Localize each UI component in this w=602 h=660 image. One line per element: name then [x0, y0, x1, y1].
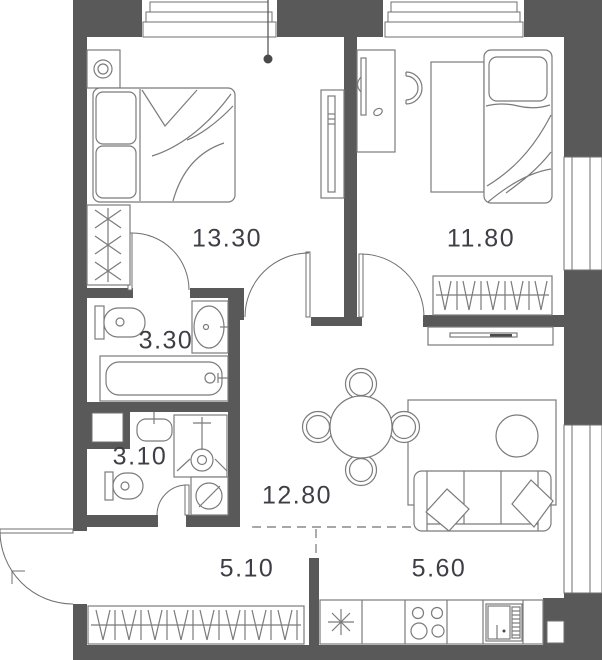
room-label-living-room: 12.80	[262, 482, 332, 511]
window-icon-right-living	[564, 425, 602, 593]
zone-boundary	[252, 527, 412, 556]
sofa-icon	[414, 471, 553, 531]
window-icon-right-bedroom	[564, 157, 602, 270]
desk-icon	[357, 50, 395, 152]
wardrobe-hangers-icon	[433, 276, 552, 315]
mattress-icon	[431, 62, 484, 192]
bedroom-2-furniture	[357, 50, 552, 315]
room-label-bedroom-2: 11.80	[447, 225, 515, 254]
small-sink-icon	[137, 412, 172, 441]
desk-chair-icon	[406, 72, 422, 104]
washing-machine-icon	[191, 477, 228, 515]
living-room-furniture	[303, 327, 557, 531]
room-label-bathroom: 3.30	[139, 327, 194, 356]
coffee-table-icon	[496, 415, 538, 457]
window-icon-top-left	[143, 2, 276, 37]
bathtub-icon	[100, 356, 228, 401]
tv-console-icon	[428, 327, 553, 345]
hallway-furniture	[88, 606, 304, 644]
shower-icon	[174, 415, 227, 477]
toilet-icon	[95, 306, 145, 339]
entrance-door-icon	[0, 529, 73, 604]
kitchen-furniture	[320, 600, 543, 644]
floor-plan: 13.30 11.80 3.30 3.10 12.80 5.10 5.60	[0, 0, 602, 660]
door-swing-icon-toilet-room	[157, 485, 189, 515]
toilet-icon	[105, 472, 143, 500]
floor-plan-drawing	[0, 0, 602, 660]
room-label-hallway: 5.10	[220, 555, 275, 584]
room-label-kitchen: 5.60	[412, 555, 467, 584]
dining-table-icon	[330, 396, 392, 458]
fridge-icon	[486, 604, 522, 641]
sink-icon	[192, 301, 228, 353]
nightstand-lamp-icon	[87, 50, 120, 88]
wardrobe-hangers-icon	[88, 606, 304, 644]
double-bed-icon	[93, 88, 235, 202]
window-icon-top-right	[385, 2, 523, 37]
wardrobe-hangers-icon	[87, 205, 130, 285]
single-bed-icon	[484, 50, 552, 203]
shelf-cabinet-icon	[321, 90, 344, 198]
room-label-bedroom-1: 13.30	[192, 225, 262, 254]
door-swing-icon-bedroom-2	[359, 254, 424, 317]
door-swing-icon-bathroom	[128, 233, 189, 290]
door-swing-icon-bedroom-1	[245, 252, 310, 317]
room-label-toilet-room: 3.10	[113, 443, 168, 472]
